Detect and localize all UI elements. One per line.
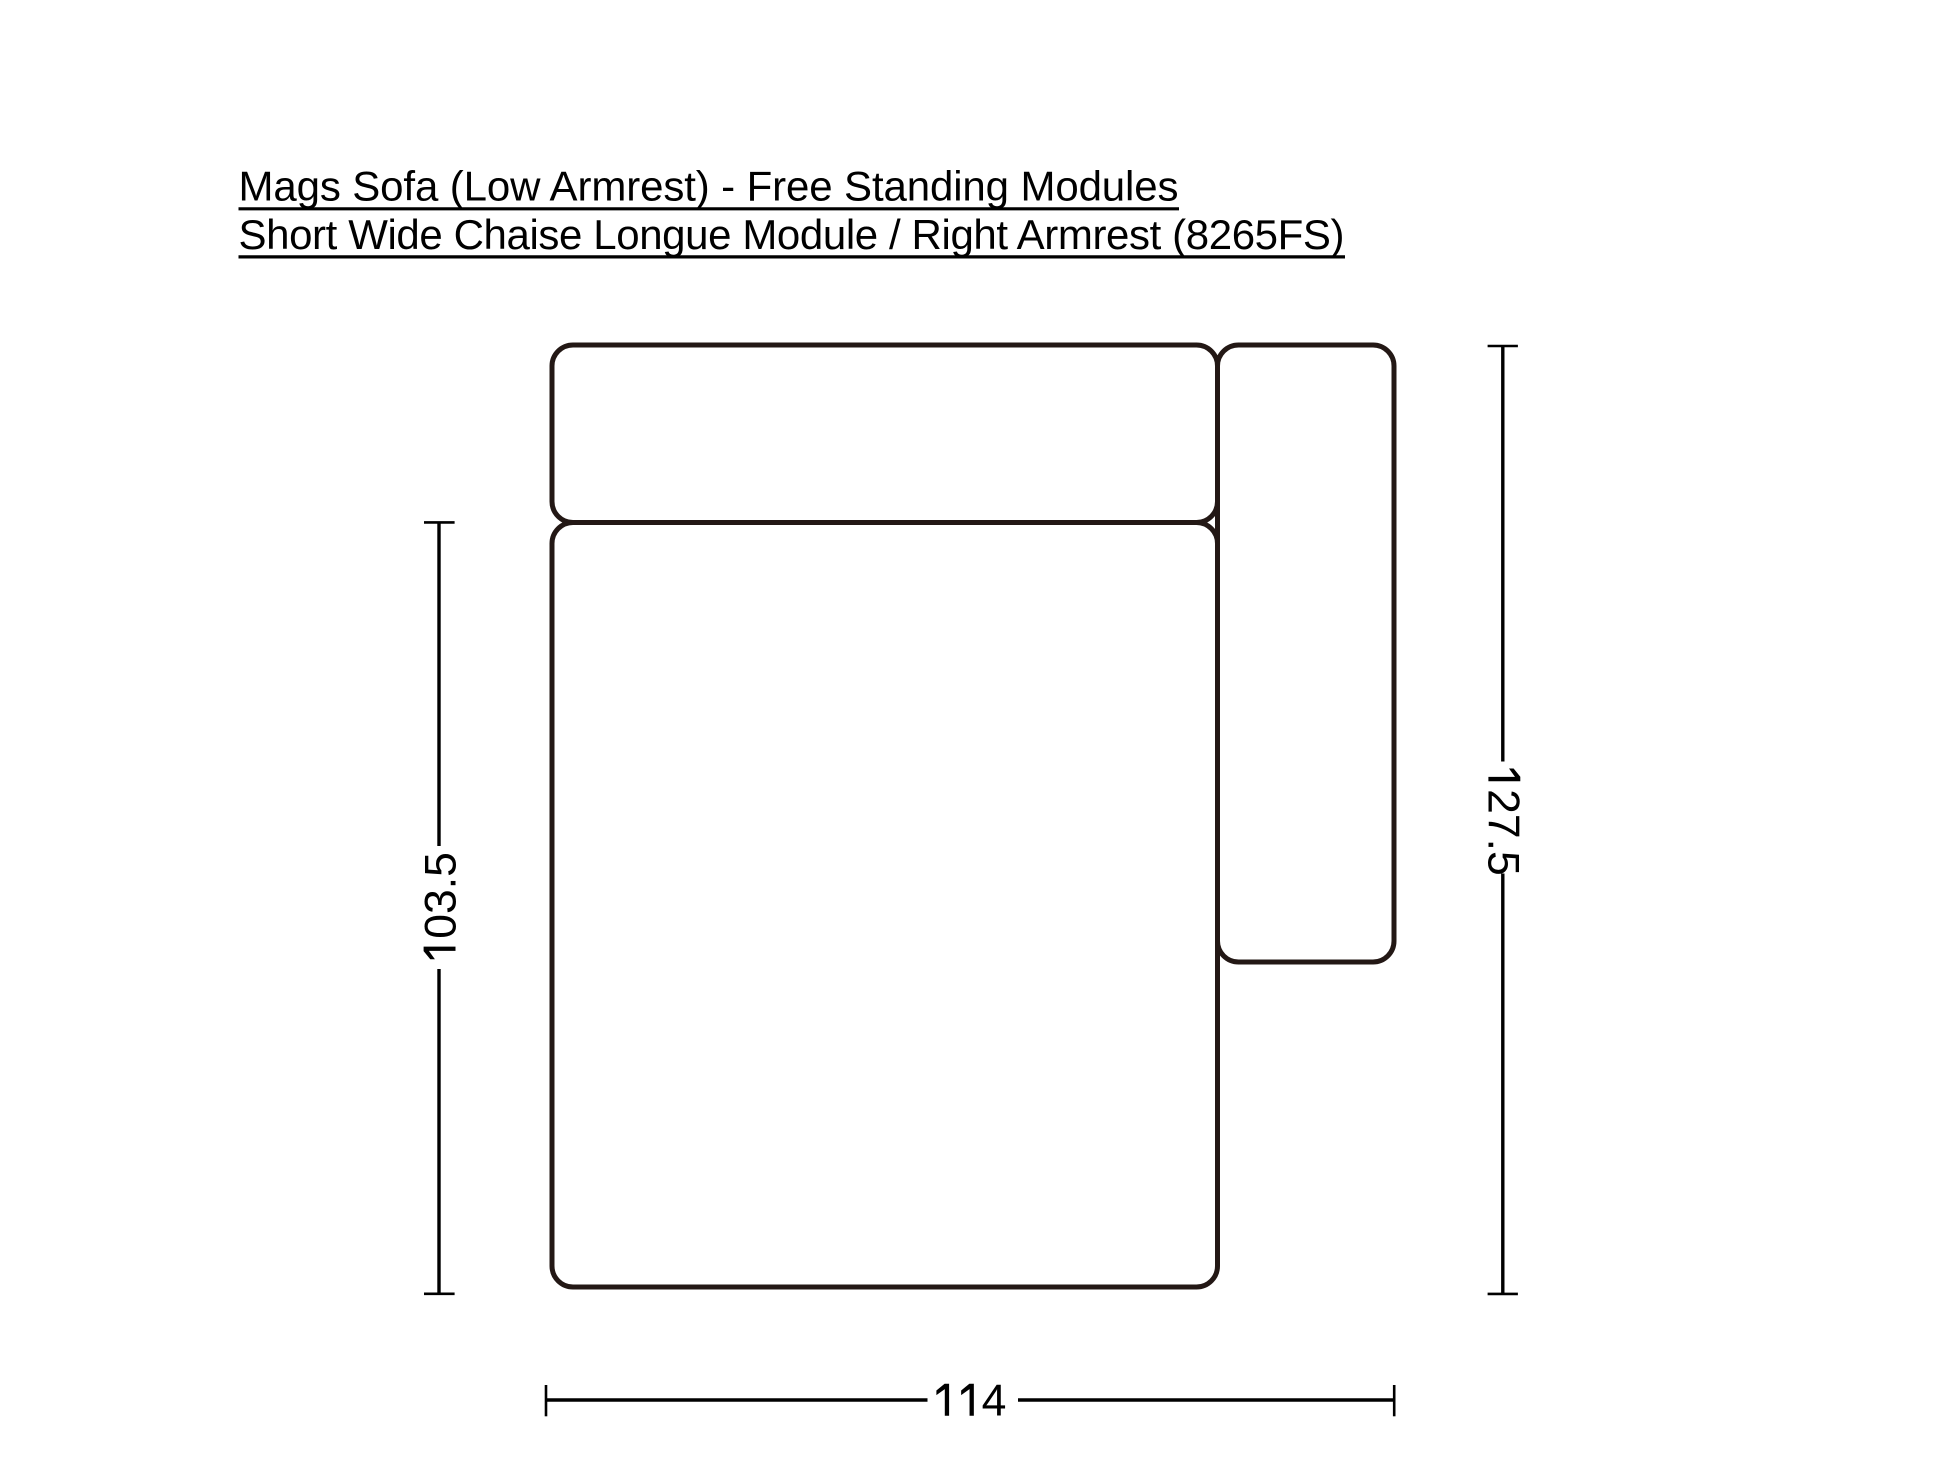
svg-text:Mags Sofa (Low Armrest) - Free: Mags Sofa (Low Armrest) - Free Standing …: [239, 162, 1179, 209]
svg-text:Short Wide Chaise Longue Modul: Short Wide Chaise Longue Module / Right …: [239, 211, 1345, 258]
svg-text:4: 4: [982, 1377, 1007, 1426]
svg-text:27.5: 27.5: [1478, 789, 1527, 876]
svg-text:03.5: 03.5: [417, 852, 466, 939]
